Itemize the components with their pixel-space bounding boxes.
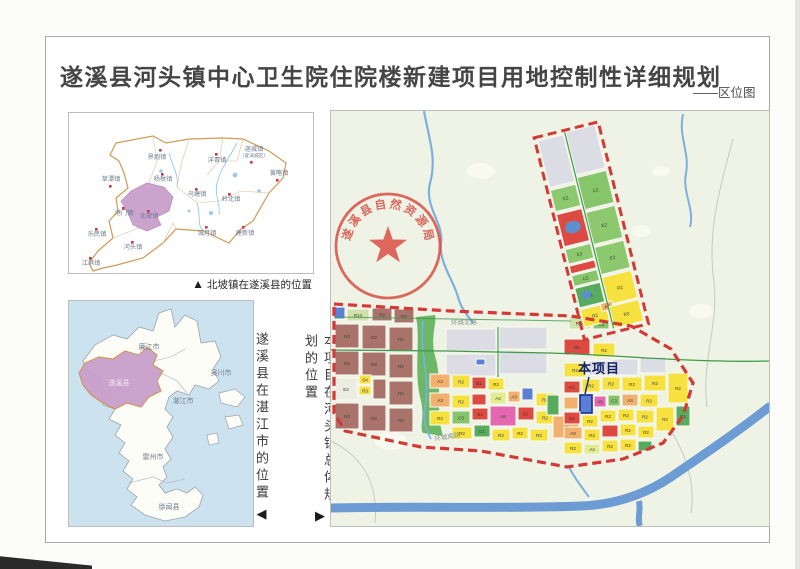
parcel-label: R2 xyxy=(601,348,607,353)
parcel-label: R3 xyxy=(362,388,368,393)
parcel-label: R2 xyxy=(371,335,377,340)
parcel-label: S4 xyxy=(362,377,368,382)
region-label: 遂溪县 xyxy=(109,378,130,387)
parcel-label: R2 xyxy=(608,381,614,386)
town-label: 草潭镇 xyxy=(102,175,121,183)
parcel-label: R2 xyxy=(517,431,523,436)
triangle-up-icon: ▲ xyxy=(192,277,204,291)
town-label: 港门镇 xyxy=(115,209,134,217)
parcel xyxy=(476,359,485,365)
town-label: 界炮镇 xyxy=(148,153,167,161)
parcel-label: G1 xyxy=(479,429,486,434)
parcel-label: R2 xyxy=(398,418,404,423)
town-label: 河头镇 xyxy=(124,243,143,251)
parcel-label: R2 xyxy=(344,414,350,419)
parcel-label: B1 xyxy=(477,412,483,417)
parcel-label: R2 xyxy=(458,399,464,404)
parcel xyxy=(564,397,578,409)
parcel-label: A5 xyxy=(500,414,506,419)
town-label: 杨柑镇 xyxy=(154,175,173,183)
parcel-label: R2 xyxy=(646,398,652,403)
town-dot xyxy=(242,226,245,229)
town-sublabel: （遂溪城区） xyxy=(240,152,269,159)
parcel-label: R2 xyxy=(570,446,576,451)
scanned-planning-sheet: 遂溪县河头镇中心卫生院住院楼新建项目用地控制性详细规划 ——区位图 xyxy=(0,0,800,569)
parcel-label: R1 xyxy=(569,385,575,390)
parcel-label: B1 xyxy=(476,381,482,386)
parcel xyxy=(522,388,533,400)
parcel-label: R2 xyxy=(587,419,593,424)
town-dot xyxy=(109,185,112,188)
parcel-label: R2 xyxy=(379,312,385,317)
parcel-label: R2 xyxy=(371,416,377,421)
master-plan-map: R14R2R2R2R2R2R2R2R2E2S4R3R2R2R2R2B1R2R14… xyxy=(330,110,770,527)
parcel-label: B1 xyxy=(569,416,575,421)
town-label: 江洪镇 xyxy=(82,259,101,267)
city-location-map: 廉江市吴川市遂溪县湛江市雷州市徐闻县 xyxy=(68,300,254,527)
parcel-label: A3 xyxy=(627,398,633,403)
parcel-label: A3 xyxy=(437,379,443,384)
parcel-label: R2 xyxy=(588,383,594,388)
parcel-label: R2 xyxy=(398,391,404,396)
parcel-label: R2 xyxy=(542,415,548,420)
parcel xyxy=(499,352,547,374)
parcel-label: R2 xyxy=(398,337,404,342)
region-label: 湛江市 xyxy=(173,396,194,405)
page-title: 遂溪县河头镇中心卫生院住院楼新建项目用地控制性详细规划 xyxy=(60,58,720,92)
parcel xyxy=(446,354,496,376)
parcel-label: C3 xyxy=(458,415,464,420)
parcel-label: R2 xyxy=(605,414,611,419)
region-label: 廉江市 xyxy=(139,342,160,351)
town-label: 黄略镇 xyxy=(270,169,289,177)
county-location-map: 界炮镇遂城镇（遂溪城区）洋青镇黄略镇草潭镇杨柑镇乌塘镇岭北镇港门镇北坡镇城月镇建… xyxy=(68,112,314,274)
town-dot xyxy=(250,161,253,164)
town-label: 北坡镇 xyxy=(140,212,159,220)
parcel-label: R2 xyxy=(589,433,595,438)
parcel-label: R2 xyxy=(536,433,542,438)
triangle-left-icon: ◀ xyxy=(257,506,267,522)
region-label: 徐闻县 xyxy=(159,502,180,511)
peninsula-land xyxy=(83,309,221,521)
parcel-label: R2 xyxy=(623,413,629,418)
parcel-label: R2 xyxy=(607,444,613,449)
town-label: 乐民镇 xyxy=(88,230,107,238)
city-map-caption: 遂溪县在湛江市的位置 ◀ xyxy=(252,332,271,522)
parcel-label: A4 xyxy=(589,447,595,452)
parcel-label: R2 xyxy=(662,417,668,422)
town-label: 建新镇 xyxy=(236,229,255,237)
scan-edge xyxy=(795,0,800,569)
parcel-label: E2 xyxy=(343,387,349,392)
parcel xyxy=(602,425,618,437)
parcel-label: R2 xyxy=(675,386,681,391)
parcel xyxy=(580,395,592,413)
parcel-label: R2 xyxy=(437,416,443,421)
region-label: 雷州市 xyxy=(143,452,164,461)
parcel-label: B1 xyxy=(523,411,529,416)
parcel xyxy=(373,379,386,399)
parcel-label: A4 xyxy=(495,396,501,401)
parcel-label: B1 xyxy=(574,345,580,350)
town-dot xyxy=(205,226,208,229)
parcel-label: R2 xyxy=(498,433,504,438)
triangle-right-icon: ▶ xyxy=(315,508,325,524)
page-subtitle: ——区位图 xyxy=(693,82,756,101)
town-dot xyxy=(159,149,162,152)
parcel xyxy=(446,329,496,351)
town-dot xyxy=(215,153,218,156)
parcel-label: C3 xyxy=(611,398,617,403)
parcel xyxy=(499,327,547,349)
parcel-label: A3 xyxy=(437,398,443,403)
parcel-label: R2 xyxy=(493,382,499,387)
islands xyxy=(207,389,245,445)
parcel xyxy=(547,395,559,415)
town-label: 城月镇 xyxy=(198,229,217,237)
scan-artifact xyxy=(0,552,92,569)
parcel-label: R2 xyxy=(642,414,648,419)
region-label: 吴川市 xyxy=(211,368,232,377)
town-label: 岭北镇 xyxy=(222,195,241,203)
town-label: 遂城镇 xyxy=(245,145,264,153)
parcel-label: R2 xyxy=(458,379,464,384)
parcel-label: R2 xyxy=(371,362,377,367)
parcel-label: R2 xyxy=(625,428,631,433)
parcel-label: R2 xyxy=(398,364,404,369)
seal-star-icon xyxy=(369,226,407,262)
parcel-label: R2 xyxy=(344,361,350,366)
city-map-caption-text: 遂溪县在湛江市的位置 xyxy=(252,332,271,502)
official-seal: 遂溪县自然资源局 xyxy=(336,194,440,298)
plan-parcels: R14R2R2R2R2R2R2R2R2E2S4R3R2R2R2R2B1R2R14… xyxy=(334,307,690,454)
county-map-caption: ▲北坡镇在遂溪县的位置 xyxy=(68,277,312,292)
town-label: 洋青镇 xyxy=(208,156,227,164)
parcel-label: A3 xyxy=(570,431,576,436)
town-label: 乌塘镇 xyxy=(188,190,207,198)
parcel xyxy=(640,357,666,373)
parcel xyxy=(472,394,486,405)
parcel-label: R2 xyxy=(344,334,350,339)
parcel-label: R2 xyxy=(643,430,649,435)
parcel-label: A3 xyxy=(511,394,517,399)
parcel-label: R2 xyxy=(625,443,631,448)
parcel-label: A5 xyxy=(597,399,603,404)
county-map-caption-text: 北坡镇在遂溪县的位置 xyxy=(207,279,312,291)
town-dot xyxy=(276,179,279,182)
parcel-label: R2 xyxy=(629,382,635,387)
parcel-label: R2 xyxy=(652,381,658,386)
project-label: 本项目 xyxy=(578,361,620,376)
